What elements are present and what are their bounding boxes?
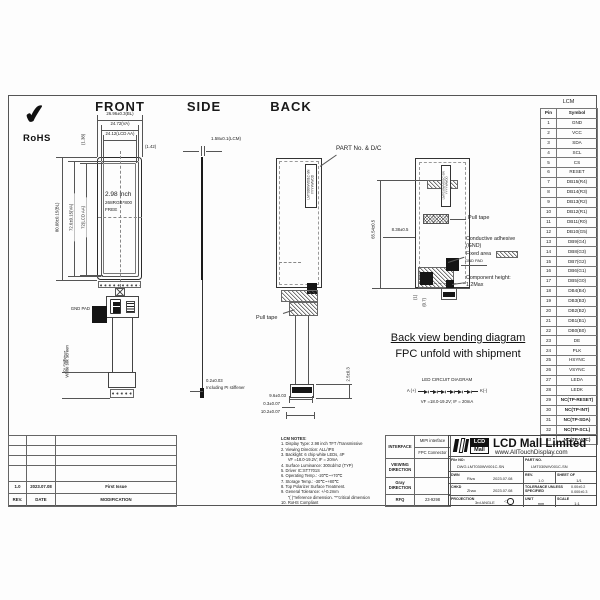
lcdmall-logo: LCD Mall bbox=[454, 438, 490, 454]
dim-line bbox=[383, 237, 415, 238]
rev-cell-empty bbox=[27, 456, 56, 466]
pin-symbol: DB9(G4) bbox=[557, 237, 598, 247]
pin-number: 18 bbox=[541, 287, 557, 297]
side-panel-edge bbox=[201, 157, 203, 280]
ext-line bbox=[56, 157, 97, 158]
dim-connector-w3: 10.2±0.07 bbox=[248, 410, 280, 415]
gray-direction-value bbox=[415, 478, 451, 495]
front-fpc-tail bbox=[112, 318, 133, 372]
dim-connector-w1: 9.6±0.03 bbox=[256, 394, 286, 399]
dim-line bbox=[190, 391, 203, 392]
ext-line bbox=[316, 384, 352, 385]
ext-line bbox=[62, 372, 108, 373]
label-line: DIRECTION bbox=[386, 468, 414, 473]
pin-number: 11 bbox=[541, 217, 557, 227]
ext-line bbox=[80, 275, 103, 276]
pin-number: 29 bbox=[541, 395, 557, 405]
back1-fpc-edge bbox=[308, 316, 309, 384]
rev-cell-empty bbox=[9, 436, 27, 446]
rohs-check-icon: ✔ bbox=[22, 99, 48, 132]
scale-label: SCALE bbox=[557, 497, 569, 501]
front-connector-body bbox=[108, 372, 136, 388]
dim-line bbox=[206, 151, 222, 152]
scale-value: 1:1 bbox=[567, 501, 587, 506]
dwn-date: 2023.07.08 bbox=[493, 476, 512, 481]
pin-number: 3 bbox=[541, 138, 557, 148]
dim-line bbox=[282, 407, 295, 408]
pin-number: 23 bbox=[541, 336, 557, 346]
ext-line bbox=[289, 396, 290, 403]
pin-symbol: DB2(B2) bbox=[557, 306, 598, 316]
symbol-col-header: Symbol bbox=[557, 109, 598, 119]
ext-line bbox=[101, 125, 102, 161]
pin-col-header: Pin bbox=[541, 109, 557, 119]
pin-number: 10 bbox=[541, 207, 557, 217]
back2-pull-tape-band bbox=[423, 214, 449, 224]
pin-number: 21 bbox=[541, 316, 557, 326]
ext-line bbox=[377, 180, 427, 181]
pin-symbol: DB7(G2) bbox=[557, 257, 598, 267]
led-diode-icon bbox=[424, 390, 429, 394]
ext-line bbox=[80, 163, 103, 164]
pin-symbol: DB1(B1) bbox=[557, 316, 598, 326]
rev-date: 2023.07.08 bbox=[27, 482, 56, 494]
pin-number: 30 bbox=[541, 405, 557, 415]
ext-line bbox=[312, 396, 313, 403]
pin-number: 1 bbox=[541, 118, 557, 128]
sheet-label: SHEET OF bbox=[557, 473, 575, 477]
dim-line bbox=[289, 399, 312, 400]
pin-symbol: DB10(G5) bbox=[557, 227, 598, 237]
pin-symbol: DB6(G1) bbox=[557, 267, 598, 277]
pin-symbol: LEDA bbox=[557, 376, 598, 386]
rev-cell-empty bbox=[9, 456, 27, 466]
dim-width-va: 24.72(VA) bbox=[98, 122, 142, 127]
pin-number: 5 bbox=[541, 158, 557, 168]
dim-fpc-thickness: 0.2±0.03 bbox=[206, 379, 223, 384]
pin-symbol: DB8(G3) bbox=[557, 247, 598, 257]
led-diagram-row: A (+) K(-) bbox=[388, 387, 506, 396]
dim-offset-right: (1.42) bbox=[145, 145, 156, 150]
pin-symbol: DB3(B3) bbox=[557, 296, 598, 306]
interface-value-1: MIPI interface bbox=[415, 436, 451, 448]
dim-fpc-thickness-note: Including PI stiffener bbox=[206, 386, 245, 391]
rev-cell-empty bbox=[56, 456, 177, 466]
pin-symbol: NC(TP-SCL) bbox=[557, 425, 598, 435]
pin-symbol: PLK bbox=[557, 346, 598, 356]
pin-symbol: DB14(R3) bbox=[557, 188, 598, 198]
rev-cell-empty bbox=[27, 436, 56, 446]
rev-cell-empty bbox=[56, 466, 177, 482]
grid-line bbox=[555, 471, 556, 483]
front-screen-resolution: 268RGB*800 bbox=[105, 200, 132, 205]
side-fpc-edge bbox=[202, 280, 203, 390]
ext-line bbox=[68, 161, 101, 162]
pin-table-title: LCM bbox=[540, 99, 597, 105]
sticker-part-number: LMT030WV001C-SN YYYYWWDD bbox=[307, 163, 314, 207]
pin-number: 20 bbox=[541, 306, 557, 316]
label-line: SPECIFIED bbox=[525, 489, 563, 493]
led-diode-icon bbox=[441, 390, 446, 394]
grid-line bbox=[523, 456, 524, 507]
front-fpc-component-1 bbox=[110, 299, 121, 314]
rev-label: REV. bbox=[525, 473, 533, 477]
title-block: LCD Mall LCD Mall Limited www.AllTouchDi… bbox=[448, 435, 597, 506]
rev-cell-empty bbox=[27, 446, 56, 456]
pin-number: 17 bbox=[541, 277, 557, 287]
fixed-area-swatch bbox=[496, 251, 518, 258]
led-diode-icon bbox=[467, 390, 472, 394]
dim-connector-w2: 0.3±0.07 bbox=[250, 402, 280, 407]
back1-connector-stiffener bbox=[292, 387, 312, 393]
company-website: www.AllTouchDisplay.com bbox=[495, 449, 568, 456]
pin-number: 25 bbox=[541, 356, 557, 366]
dim-total-height: 65.54±0.5 bbox=[372, 209, 377, 249]
modification-header: MODIFICATION bbox=[56, 494, 177, 507]
rev-modification: First Issue bbox=[56, 482, 177, 494]
front-gnd-pad-label: GND PAD bbox=[62, 307, 90, 312]
pin-number: 14 bbox=[541, 247, 557, 257]
pin-number: 8 bbox=[541, 188, 557, 198]
pin-number: 6 bbox=[541, 168, 557, 178]
ext-line bbox=[204, 146, 205, 156]
tolerance-label: TOLERANCE UNLESS SPECIFIED bbox=[525, 485, 563, 493]
front-screen-size: 2.98 inch bbox=[105, 191, 131, 198]
dim-top-offset: 8.38±0.5 bbox=[387, 228, 413, 233]
led-spec: VF =18.0-19.2V; IF = 20mA bbox=[392, 400, 502, 405]
ext-line bbox=[286, 412, 287, 419]
pin-number: 12 bbox=[541, 227, 557, 237]
ext-line bbox=[138, 125, 139, 161]
pin-number: 19 bbox=[541, 296, 557, 306]
rev-cell-empty bbox=[27, 466, 56, 482]
logo-lcd: LCD bbox=[474, 439, 485, 445]
third-angle-projection-icon: ◁ bbox=[504, 498, 514, 505]
dim-line bbox=[349, 384, 350, 398]
pin-symbol: DB11(R0) bbox=[557, 217, 598, 227]
dim-line bbox=[103, 140, 136, 141]
dim-gap-2: (0.7) bbox=[423, 292, 428, 312]
projection-circle-icon bbox=[507, 498, 514, 505]
pin-symbol: DB13(R2) bbox=[557, 198, 598, 208]
pin-symbol: VSYNC bbox=[557, 366, 598, 376]
gnd-pad-label-2: GND PAD bbox=[465, 259, 483, 264]
chkd-label: CHKD bbox=[451, 485, 461, 489]
rev-header: REV. bbox=[9, 494, 27, 507]
ext-line bbox=[314, 412, 315, 419]
rfq-value: 23-9298 bbox=[415, 495, 451, 507]
ext-line bbox=[136, 135, 137, 163]
grid-line bbox=[555, 495, 556, 507]
pin-symbol: CS bbox=[557, 158, 598, 168]
front-centerline-v bbox=[120, 151, 121, 287]
notes-line: 10. RoHS Compliant bbox=[281, 500, 384, 505]
file-no-label: File NO: bbox=[451, 458, 465, 462]
back-view-title: BACK bbox=[262, 100, 320, 115]
ext-line bbox=[142, 115, 143, 157]
pin-number: 7 bbox=[541, 178, 557, 188]
pin-number: 32 bbox=[541, 425, 557, 435]
rfq-label: RFQ bbox=[386, 495, 415, 507]
rohs-logo: ✔ RoHS bbox=[20, 98, 64, 150]
pin-number: 24 bbox=[541, 346, 557, 356]
ext-line bbox=[201, 146, 202, 156]
file-no-value: DWG.LMT030WV001C-SN bbox=[457, 464, 504, 469]
sticker-line2: YYYYWWDD bbox=[311, 163, 315, 207]
pin-number: 2 bbox=[541, 128, 557, 138]
chkd-date: 2023.07.08 bbox=[493, 488, 512, 493]
pin-symbol: SCL bbox=[557, 148, 598, 158]
ext-line bbox=[316, 398, 352, 399]
pin-number: 31 bbox=[541, 415, 557, 425]
dim-offset-top: (1.38) bbox=[82, 127, 87, 151]
rev-cell-empty bbox=[9, 446, 27, 456]
pin-number: 26 bbox=[541, 366, 557, 376]
rev-value: 1.0 bbox=[533, 478, 549, 483]
leader-line bbox=[450, 219, 466, 220]
front-fpc-component-2 bbox=[126, 301, 135, 313]
led-anode-label: A (+) bbox=[407, 389, 416, 394]
dim-height-va: 72.6±0.15(VA) bbox=[70, 193, 75, 241]
ext-line bbox=[56, 280, 97, 281]
pin-symbol: VCC bbox=[557, 128, 598, 138]
rev-cell-empty bbox=[9, 466, 27, 482]
side-view-title: SIDE bbox=[178, 100, 230, 115]
pin-number: 27 bbox=[541, 376, 557, 386]
tolerance-value-2: 0.000±0.3 bbox=[571, 490, 587, 494]
rev-number: 1.0 bbox=[9, 482, 27, 494]
pin-symbol: RESET bbox=[557, 168, 598, 178]
pin-number: 22 bbox=[541, 326, 557, 336]
front-centerline-h bbox=[98, 217, 142, 218]
pin-symbol: NC(TP-SDA) bbox=[557, 415, 598, 425]
drawing-sheet: ✔ RoHS FRONT SIDE BACK 2.98 inch 268RGB*… bbox=[0, 0, 600, 600]
dim-height-aa: 72(LCD AA) bbox=[82, 197, 87, 237]
fixed-area-label: Fixed area bbox=[466, 251, 491, 257]
pin-number: 28 bbox=[541, 385, 557, 395]
back1-centerline bbox=[279, 262, 301, 263]
silk-label: White silk screen bbox=[66, 335, 71, 387]
component-detail bbox=[113, 307, 120, 313]
pin-number: 15 bbox=[541, 257, 557, 267]
pin-table: PinSymbol 1GND 2VCC 3SDA 4SCL 5CS 6RESET… bbox=[540, 108, 598, 445]
pin-symbol: DB15(R4) bbox=[557, 178, 598, 188]
label-line: TOLERANCE UNLESS bbox=[525, 485, 563, 489]
front-fold-tab bbox=[115, 288, 125, 296]
gray-direction-label: GrayDIRECTION bbox=[386, 478, 415, 495]
label-line: DIRECTION bbox=[386, 486, 414, 491]
ext-line bbox=[97, 115, 98, 157]
pin-symbol: NC(TP-RESET) bbox=[557, 395, 598, 405]
pin-symbol: DB0(B0) bbox=[557, 326, 598, 336]
projection-label: PROJECTION bbox=[451, 497, 474, 501]
chkd-name: Zhao bbox=[467, 488, 476, 493]
rev-cell-empty bbox=[56, 436, 177, 446]
ext-line bbox=[68, 276, 101, 277]
pin-number: 16 bbox=[541, 267, 557, 277]
front-connector-pads bbox=[110, 389, 134, 398]
pin-symbol: SDA bbox=[557, 138, 598, 148]
back1-fpc-edge bbox=[295, 316, 296, 384]
sticker-line2: YYYYWWDD bbox=[446, 165, 449, 205]
component-height-label: Component height: bbox=[466, 275, 511, 281]
pin-number: 13 bbox=[541, 237, 557, 247]
front-screen-viewing: FREE bbox=[105, 207, 117, 212]
dim-line bbox=[183, 151, 199, 152]
pin-symbol: DB4(B4) bbox=[557, 287, 598, 297]
conductive-adhesive-label: Conductive adhesive bbox=[466, 236, 515, 242]
viewing-direction-value bbox=[415, 459, 451, 478]
back1-fold-hatch-a bbox=[281, 290, 318, 302]
back2-tab-stiffener bbox=[443, 292, 455, 297]
pin-symbol: GND bbox=[557, 118, 598, 128]
part-no-label: PART NO. bbox=[525, 458, 542, 462]
led-diagram-title: LED CIRCUIT DIAGRAM bbox=[397, 377, 497, 382]
logo-text-box: LCD Mall bbox=[470, 438, 489, 454]
pin-symbol: DB12(R1) bbox=[557, 207, 598, 217]
interface-label: INTERFACE bbox=[386, 436, 415, 459]
ext-line bbox=[62, 398, 110, 399]
rev-cell-empty bbox=[56, 446, 177, 456]
component-detail bbox=[113, 302, 120, 306]
led-cathode-label: K(-) bbox=[480, 389, 487, 394]
dim-line bbox=[62, 157, 63, 280]
dwn-name: Riva bbox=[467, 476, 475, 481]
lcm-notes: LCM NOTES: 1. Display Type: 2.98 inch TF… bbox=[281, 436, 384, 506]
part-dc-label: PART No. & D/C bbox=[336, 145, 381, 152]
led-diode-icon bbox=[450, 390, 455, 394]
front-gnd-pad bbox=[92, 306, 107, 323]
pin-number: 4 bbox=[541, 148, 557, 158]
logo-lcd-text: LCD bbox=[471, 439, 488, 447]
pin-symbol: NC(TP-INT) bbox=[557, 405, 598, 415]
pin-symbol: DE bbox=[557, 336, 598, 346]
interface-value-2: FPC Connector bbox=[415, 448, 451, 459]
pin-symbol: LEDK bbox=[557, 385, 598, 395]
spec-table: INTERFACE MIPI interface FPC Connector V… bbox=[385, 435, 451, 507]
back2-component-block bbox=[420, 272, 433, 285]
led-diode-icon bbox=[433, 390, 438, 394]
pin-symbol: DB5(G0) bbox=[557, 277, 598, 287]
conductive-adhesive-gnd: (GND) bbox=[466, 243, 481, 249]
logo-mall-text: Mall bbox=[471, 447, 488, 454]
unit-label: UNIT bbox=[525, 497, 533, 501]
sheet-value: 1/1 bbox=[569, 478, 589, 483]
viewing-direction-label: VIEWINGDIRECTION bbox=[386, 459, 415, 478]
dim-width-bl: 26.96±0.3(BL) bbox=[92, 112, 148, 117]
rohs-label: RoHS bbox=[23, 134, 51, 145]
pull-tape-label-2: Pull tape bbox=[468, 215, 489, 221]
dim-height-bl: 80.08±0.15(BL) bbox=[56, 189, 61, 245]
dim-line bbox=[286, 415, 314, 416]
part-no-value: LMT030WV001C-SN bbox=[531, 464, 568, 469]
ext-line bbox=[103, 135, 104, 163]
dim-line bbox=[380, 180, 381, 288]
front-bonding-strip bbox=[98, 281, 141, 288]
wire bbox=[472, 391, 478, 392]
unit-value: mm bbox=[533, 501, 549, 506]
pin-symbol: HSYNC bbox=[557, 356, 598, 366]
dwn-label: DWN bbox=[451, 473, 460, 477]
pull-tape-label-1: Pull tape bbox=[256, 315, 277, 321]
projection-value: 3rd ANGLE bbox=[475, 500, 495, 505]
date-header: DATE bbox=[27, 494, 56, 507]
dim-thickness: 1.58±0.1(LCM) bbox=[196, 136, 256, 141]
dim-gap-1: (1) bbox=[414, 289, 419, 305]
leader-underline bbox=[461, 265, 487, 266]
tolerance-value-1: 0.00±0.2 bbox=[571, 485, 585, 489]
bend-note-line1: Back view bending diagram bbox=[368, 332, 548, 345]
pin-number: 9 bbox=[541, 198, 557, 208]
sticker-part-number-2: LMT030WV001C-SN YYYYWWDD bbox=[443, 165, 450, 205]
led-diode-icon bbox=[458, 390, 463, 394]
bend-note-line2: FPC unfold with shipment bbox=[368, 348, 548, 361]
side-stiffener-tip bbox=[200, 388, 205, 398]
revision-table: 1.0 2023.07.08 First Issue REV. DATE MOD… bbox=[8, 435, 177, 507]
